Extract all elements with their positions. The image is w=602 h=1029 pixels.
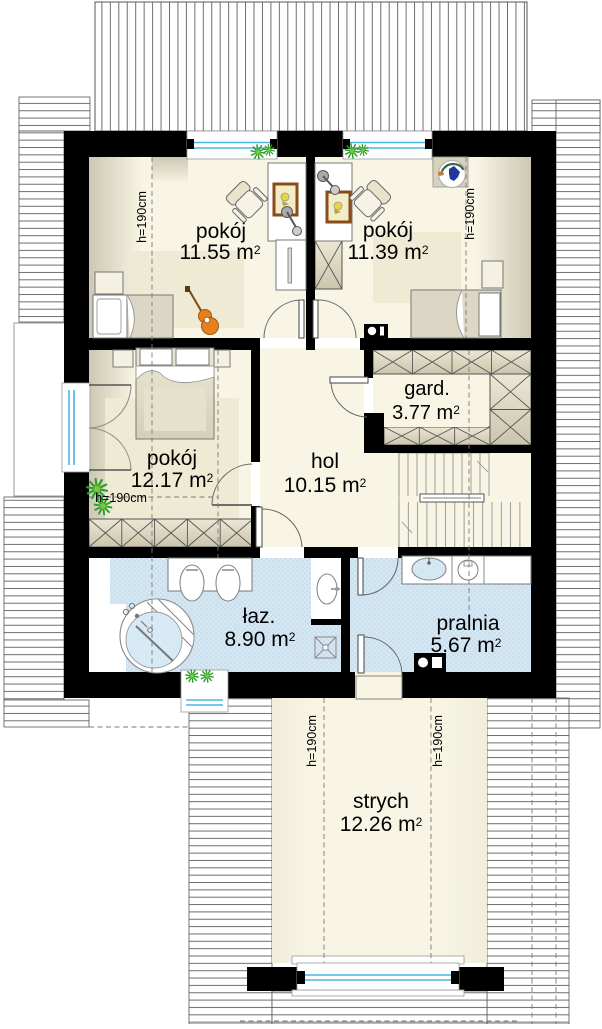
svg-text:h=190cm: h=190cm: [431, 715, 445, 767]
svg-text:h=190cm: h=190cm: [95, 491, 147, 505]
svg-text:5.67 m2: 5.67 m2: [431, 634, 502, 657]
svg-text:h=190cm: h=190cm: [463, 188, 477, 240]
svg-text:10.15 m2: 10.15 m2: [284, 474, 367, 497]
svg-text:h=190cm: h=190cm: [135, 191, 149, 243]
svg-text:pokój: pokój: [196, 220, 246, 243]
svg-text:3.77 m2: 3.77 m2: [392, 402, 460, 424]
svg-text:pokój: pokój: [363, 219, 413, 242]
svg-text:11.39 m2: 11.39 m2: [347, 241, 428, 264]
svg-text:12.26 m2: 12.26 m2: [340, 813, 423, 836]
svg-text:11.55 m2: 11.55 m2: [179, 241, 260, 264]
svg-text:12.17 m2: 12.17 m2: [131, 469, 214, 492]
svg-text:8.90 m2: 8.90 m2: [225, 628, 296, 651]
svg-text:strych: strych: [353, 790, 409, 813]
svg-text:łaz.: łaz.: [243, 605, 276, 628]
svg-text:pokój: pokój: [147, 447, 197, 470]
svg-text:hol: hol: [311, 450, 339, 473]
svg-text:h=190cm: h=190cm: [305, 715, 319, 767]
svg-text:gard.: gard.: [404, 378, 450, 400]
svg-text:pralnia: pralnia: [436, 612, 499, 635]
